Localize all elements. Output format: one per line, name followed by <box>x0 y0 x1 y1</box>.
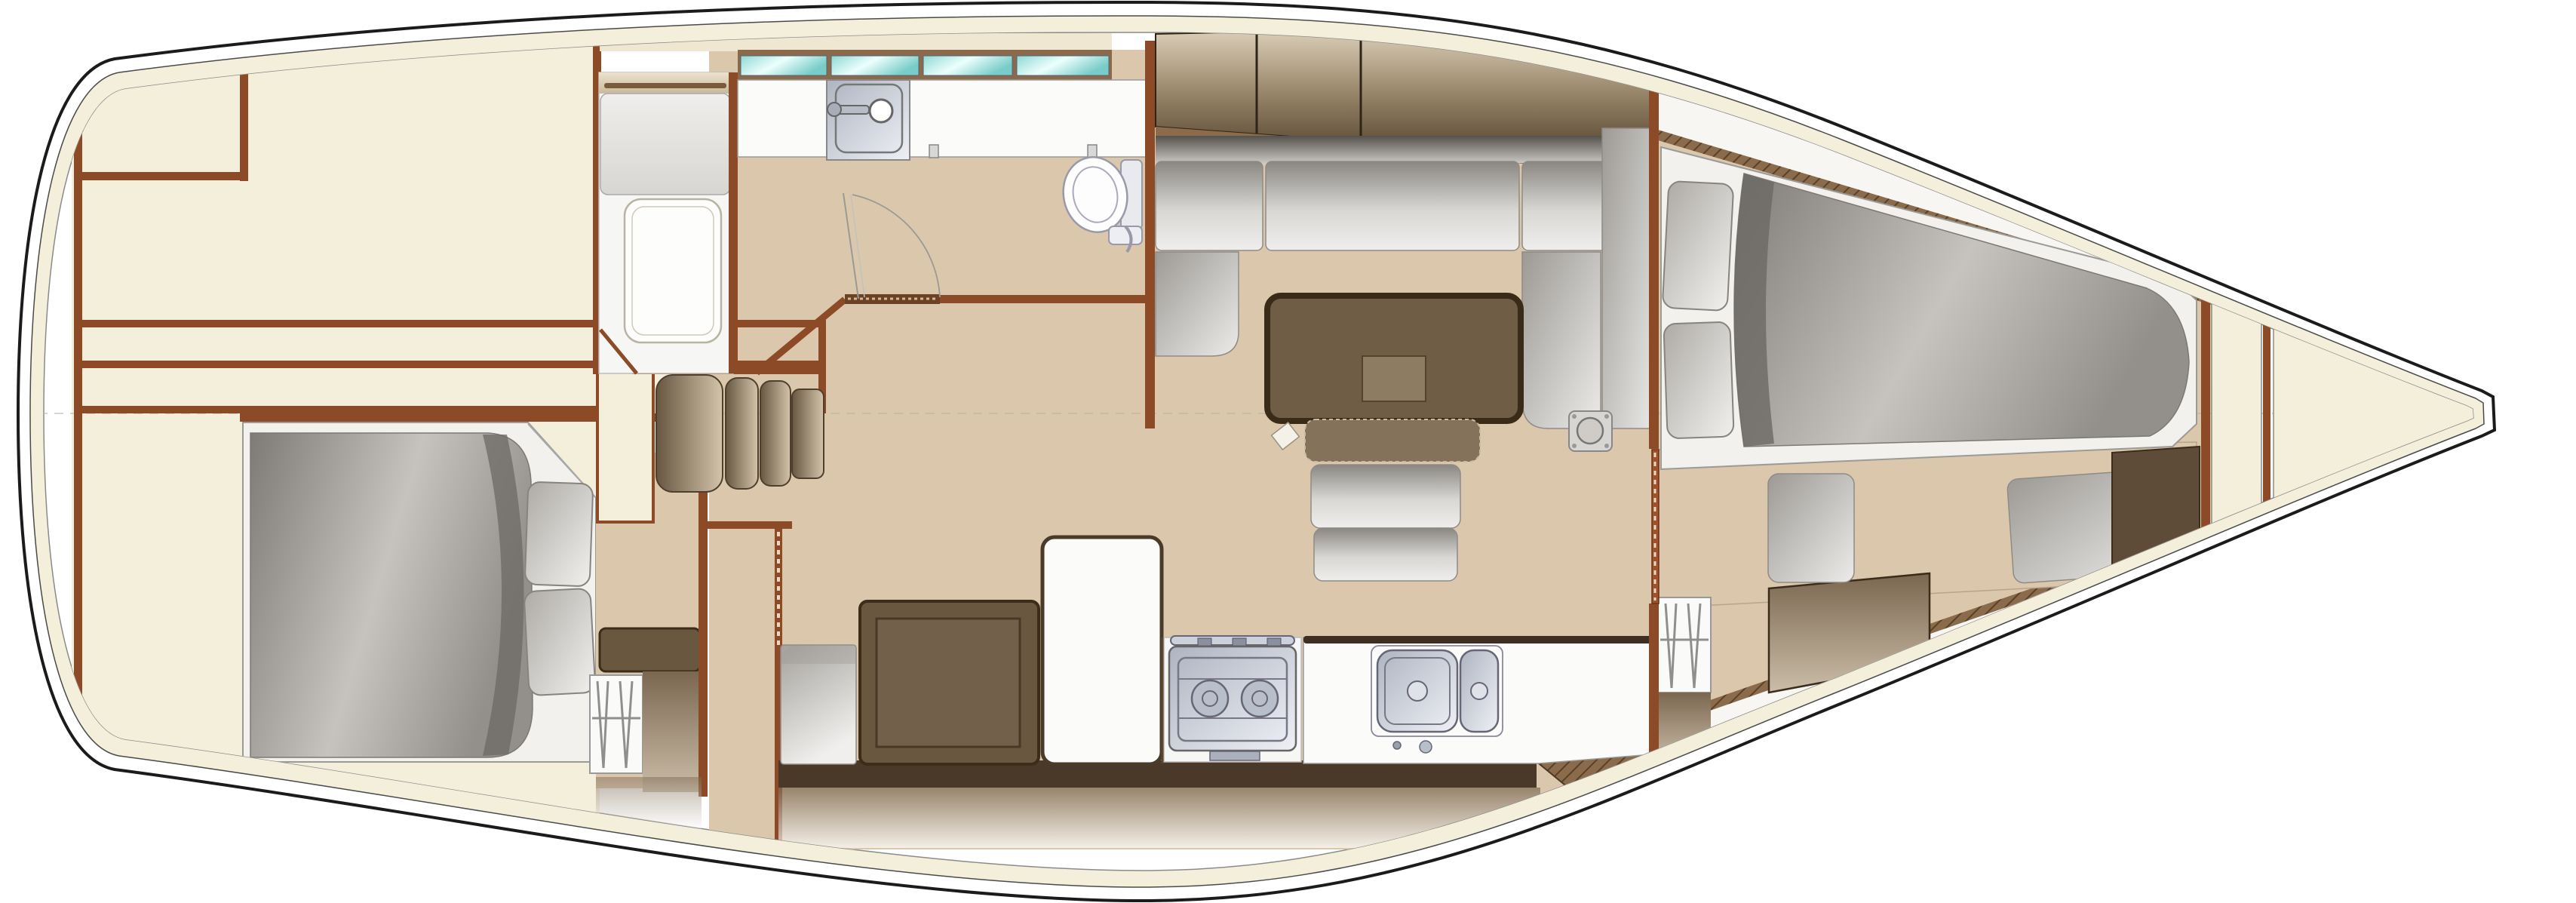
toilet-pump <box>1109 226 1142 244</box>
bench-base <box>1314 528 1457 581</box>
aft-cabin-seat <box>600 628 700 671</box>
faucet-mount-large <box>1420 741 1432 753</box>
companionway-step-3 <box>760 381 791 486</box>
floorplan-drawing <box>0 0 2576 903</box>
yacht-floorplan-canvas <box>0 0 2576 903</box>
table-insert <box>1362 356 1426 401</box>
companionway-landing <box>792 389 824 478</box>
deck-plate-screw <box>1604 444 1609 448</box>
stern-bulkhead-wall <box>74 54 82 711</box>
sole-deck-plate <box>1569 411 1612 451</box>
sink-small-drain <box>1471 683 1488 699</box>
aft-hanging-locker <box>590 671 702 792</box>
galley-door-header <box>708 521 792 529</box>
settee-back-band <box>1156 136 1629 163</box>
stove-knob-1 <box>1198 638 1211 646</box>
faucet-knob <box>827 103 841 116</box>
salon-bulkhead <box>1145 41 1155 428</box>
shower-pan-outline <box>625 199 721 342</box>
stove-drawer <box>1210 751 1260 760</box>
deck-plate-screw <box>1604 414 1609 419</box>
shower-partition-wall <box>729 72 738 373</box>
galley-island-counter <box>1042 537 1162 764</box>
stove-burner-1 <box>1192 680 1228 717</box>
shower-bench-panel <box>600 94 730 195</box>
aft-locker-shade <box>643 671 702 792</box>
sink-counter-unit <box>1303 636 1652 763</box>
head-south-wall-east <box>940 295 1150 303</box>
counter-clip-2 <box>1088 145 1097 158</box>
deck-plate-screw <box>1572 444 1577 448</box>
fwd-shelf-cushion-aft <box>1768 474 1854 582</box>
window-pane-2 <box>831 56 919 75</box>
counter-back-edge <box>1303 636 1652 643</box>
window-pane-3 <box>923 56 1012 75</box>
companionway-step-2 <box>726 378 758 489</box>
companionway-step-1 <box>656 375 723 492</box>
shower-rail <box>604 83 726 88</box>
vanity-sink <box>827 80 910 160</box>
lazarette-divider-vertical <box>240 59 248 181</box>
nav-seat-corner <box>781 645 856 664</box>
hull-window-strip <box>738 50 1112 80</box>
sink-drain <box>870 100 892 122</box>
aft-berth-pillow-2 <box>523 588 595 696</box>
lazarette-divider-horizontal <box>75 172 248 180</box>
deck-plate-ring <box>1577 418 1603 444</box>
sink-large-drain <box>1408 681 1427 701</box>
vberth-pillow-2 <box>1663 322 1733 439</box>
window-pane-4 <box>1017 56 1109 75</box>
salon-bench <box>1311 465 1460 581</box>
deck-plate-screw <box>1572 414 1577 419</box>
aft-berth-pillow-1 <box>525 482 594 587</box>
settee-forward-seat <box>1522 252 1601 428</box>
window-pane-1 <box>741 56 827 75</box>
bench-seat <box>1311 465 1460 528</box>
settee-cushion-center <box>1266 161 1519 250</box>
vberth-pillow-1 <box>1663 181 1734 311</box>
cockpit-aft-cabin-trim <box>75 406 634 413</box>
engine-box <box>597 363 653 522</box>
stove-burner-2 <box>1242 680 1278 717</box>
sink-module <box>827 80 910 160</box>
fwd-bulkhead-upper <box>1649 53 1659 449</box>
aft-berth-duvet <box>250 433 533 757</box>
counter-clip-1 <box>929 145 938 158</box>
settee-cushion-left <box>1156 161 1263 250</box>
stove <box>1164 636 1301 762</box>
settee-corner-seat <box>1156 252 1239 356</box>
stove-knob-3 <box>1267 638 1281 646</box>
table-folding-leaf <box>1305 419 1480 462</box>
faucet-mount-small <box>1393 742 1401 749</box>
oven-cabinet <box>860 601 1039 764</box>
oven-door-panel <box>877 619 1020 747</box>
stove-knob-2 <box>1233 638 1246 646</box>
